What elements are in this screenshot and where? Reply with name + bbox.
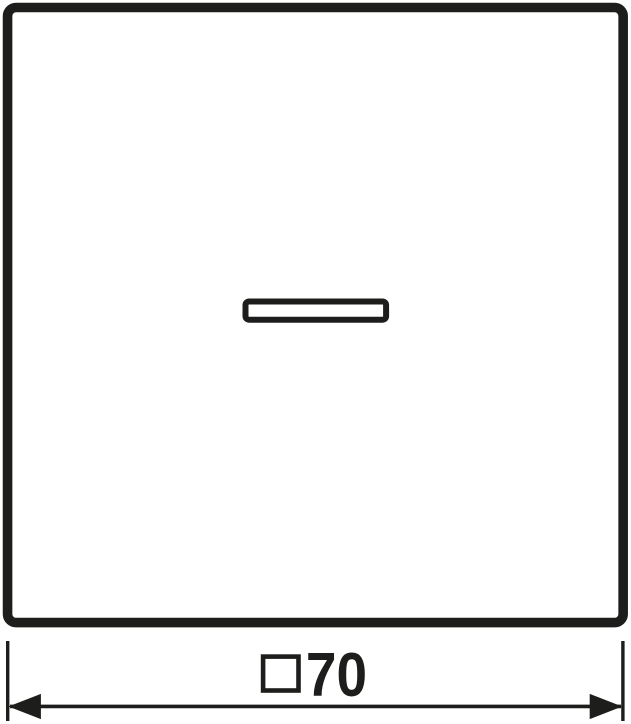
svg-text:70: 70 xyxy=(306,641,367,710)
